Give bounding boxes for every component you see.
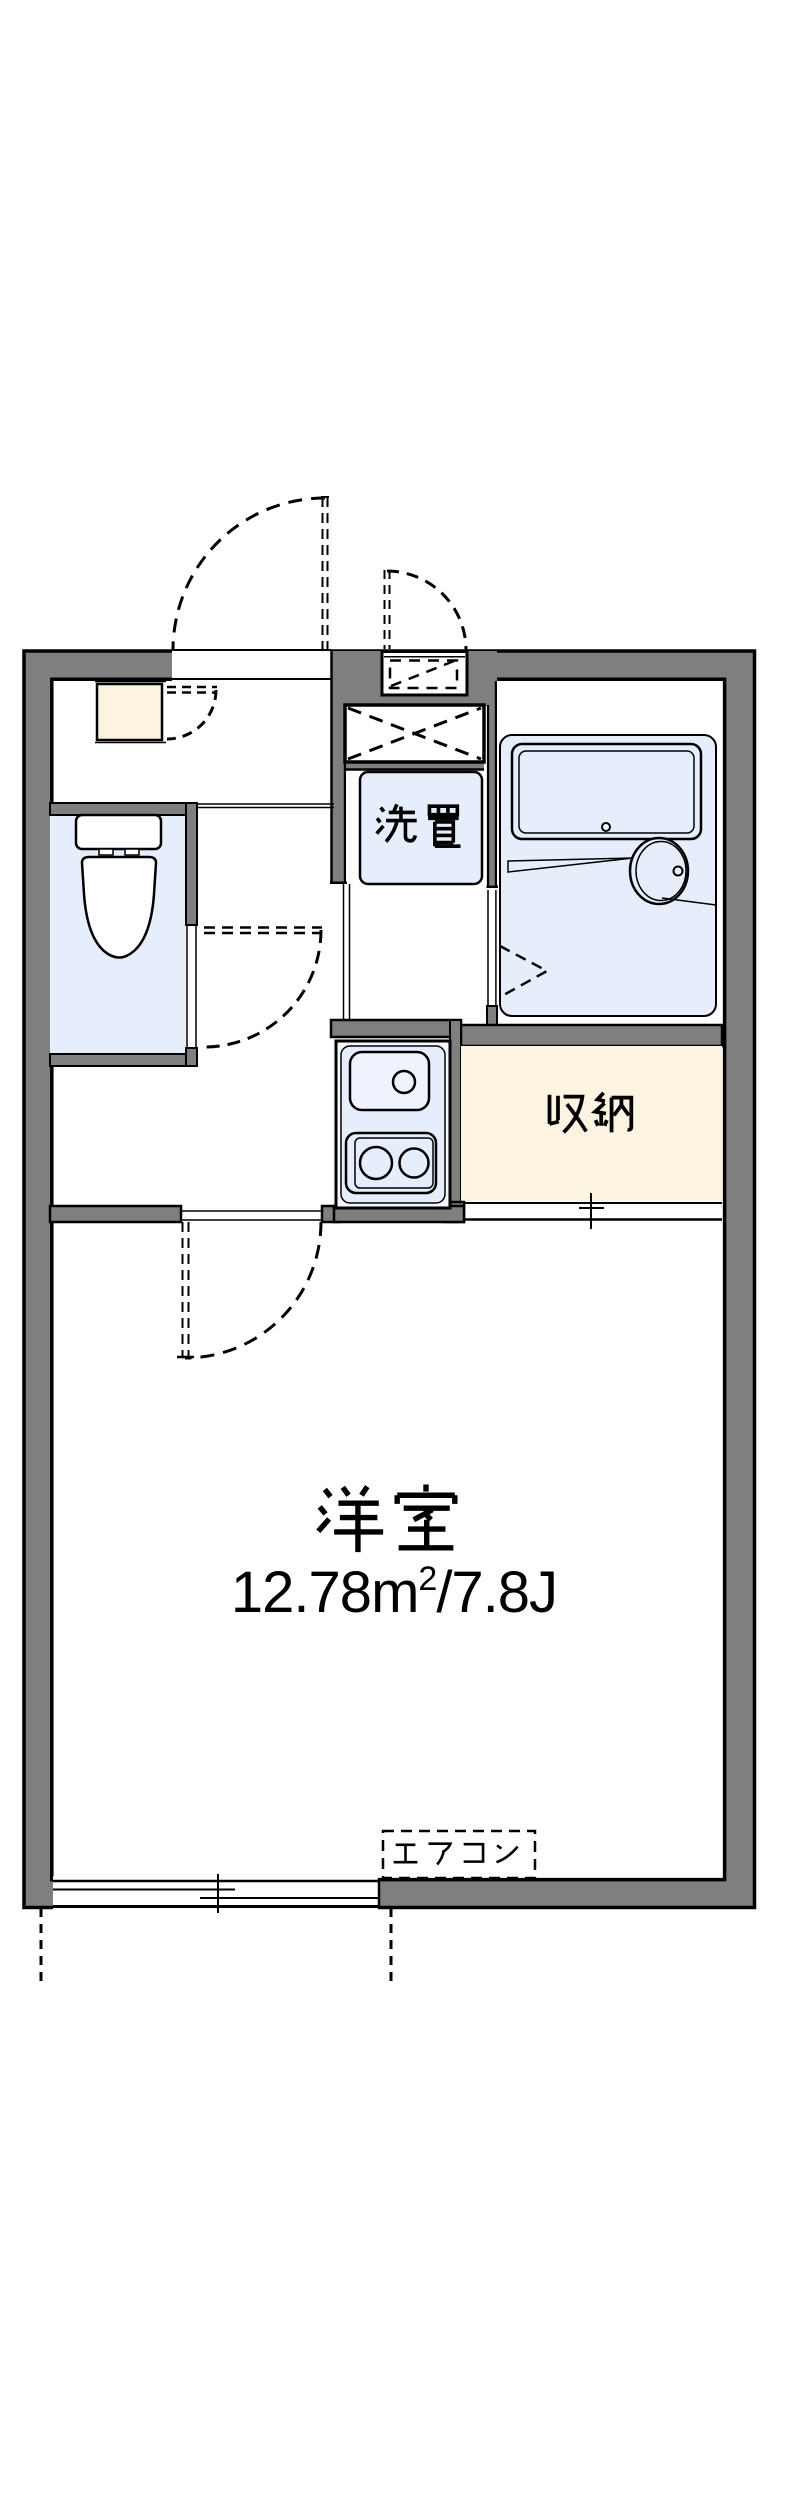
svg-text:12.78m2/7.8J: 12.78m2/7.8J [231, 1560, 557, 1625]
